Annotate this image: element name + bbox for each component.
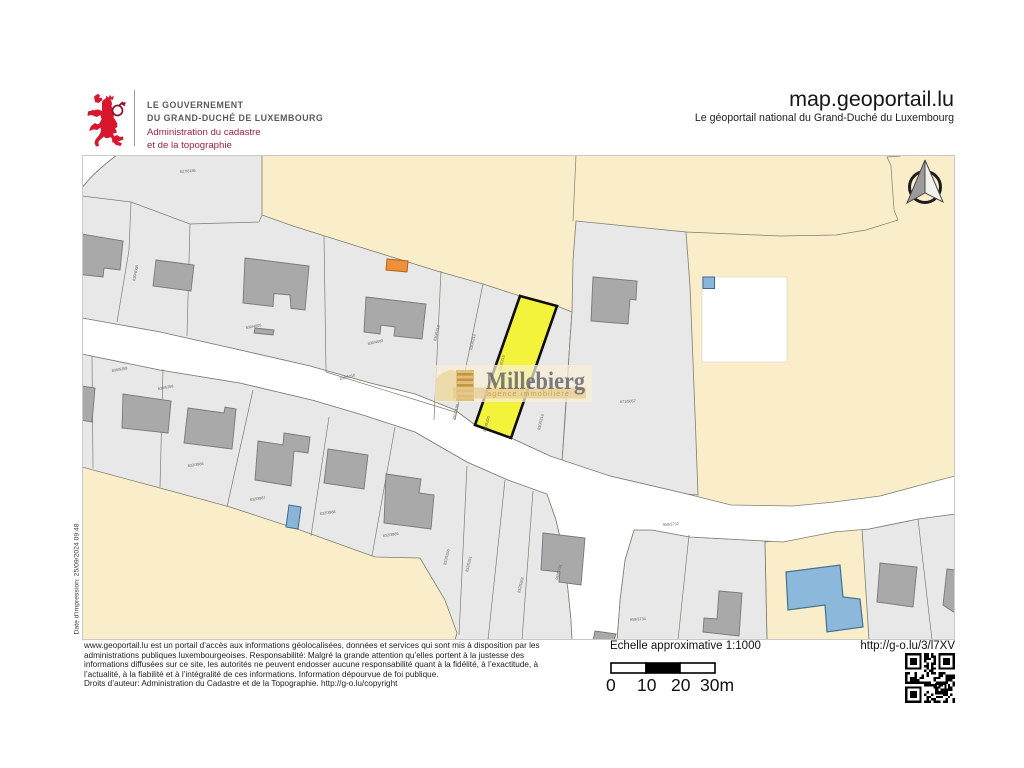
- svg-text:871/5057: 871/5057: [620, 399, 636, 404]
- svg-text:agence immobilière: agence immobilière: [487, 389, 570, 398]
